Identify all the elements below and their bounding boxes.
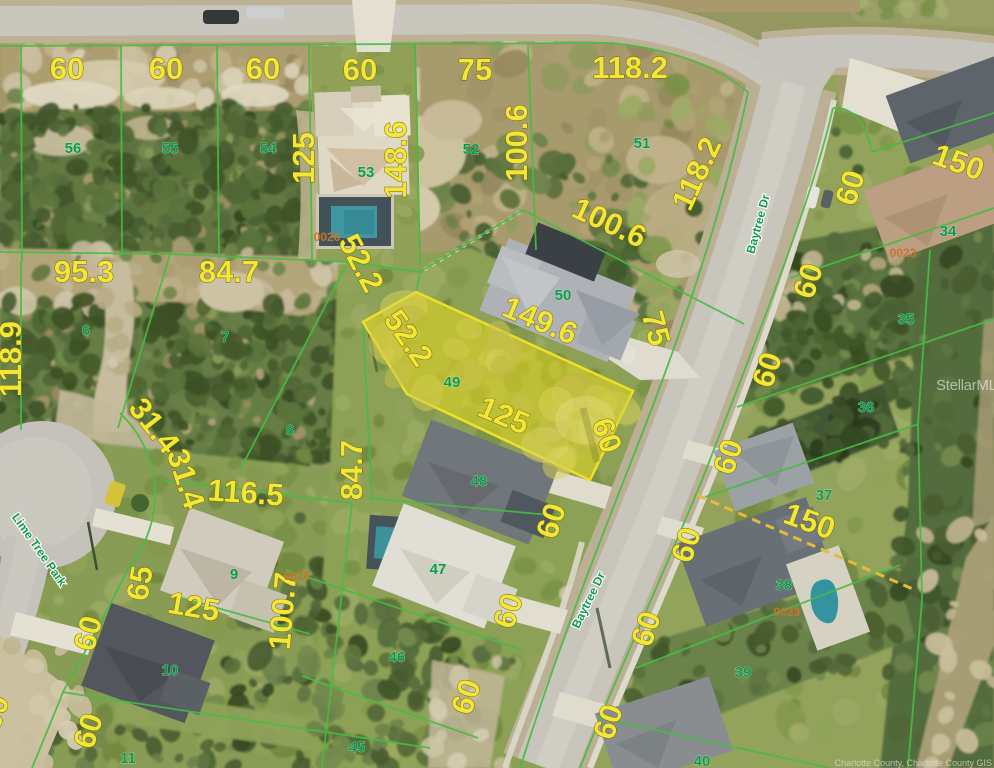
svg-text:38: 38 [776, 577, 793, 594]
svg-text:0023: 0023 [890, 246, 917, 260]
svg-text:46: 46 [389, 649, 406, 666]
svg-text:35: 35 [898, 311, 915, 328]
svg-text:65: 65 [119, 563, 159, 603]
svg-text:47: 47 [430, 561, 447, 578]
svg-text:49: 49 [444, 374, 461, 391]
svg-text:75: 75 [458, 52, 492, 87]
svg-text:10: 10 [162, 662, 179, 679]
svg-text:54: 54 [260, 140, 277, 157]
svg-text:8: 8 [286, 422, 294, 439]
svg-text:52: 52 [463, 141, 480, 158]
svg-text:34: 34 [940, 223, 957, 240]
svg-text:11: 11 [120, 750, 136, 767]
svg-text:0026: 0026 [284, 569, 311, 583]
svg-text:56: 56 [65, 140, 82, 157]
svg-text:100.6: 100.6 [499, 104, 534, 182]
svg-text:55: 55 [162, 140, 179, 157]
svg-text:37: 37 [816, 487, 833, 504]
svg-text:0023: 0023 [774, 605, 801, 619]
svg-text:60: 60 [149, 51, 183, 86]
svg-text:118.9: 118.9 [0, 321, 28, 397]
svg-text:148.6: 148.6 [378, 121, 413, 199]
svg-text:40: 40 [694, 753, 711, 768]
svg-text:9: 9 [230, 566, 238, 583]
svg-text:48: 48 [471, 473, 488, 490]
svg-text:125: 125 [286, 132, 321, 184]
svg-text:60: 60 [246, 51, 280, 86]
svg-text:84.7: 84.7 [334, 440, 369, 500]
svg-text:StellarMLS: StellarMLS [936, 377, 994, 394]
svg-text:39: 39 [735, 664, 752, 681]
svg-text:Charlotte County, Charlotte Co: Charlotte County, Charlotte County GIS [835, 758, 992, 768]
svg-text:53: 53 [358, 164, 375, 181]
svg-text:51: 51 [634, 135, 651, 152]
svg-text:50: 50 [555, 287, 572, 304]
svg-text:116.5: 116.5 [207, 472, 285, 512]
svg-text:6: 6 [82, 322, 90, 339]
svg-text:60: 60 [50, 51, 84, 86]
svg-text:0026: 0026 [314, 230, 341, 244]
svg-text:7: 7 [221, 329, 229, 346]
svg-text:84.7: 84.7 [199, 254, 259, 289]
svg-text:60: 60 [343, 52, 377, 87]
svg-text:45: 45 [349, 739, 366, 756]
svg-text:36: 36 [858, 399, 875, 416]
svg-text:118.2: 118.2 [592, 50, 668, 85]
svg-text:95.3: 95.3 [54, 254, 114, 289]
